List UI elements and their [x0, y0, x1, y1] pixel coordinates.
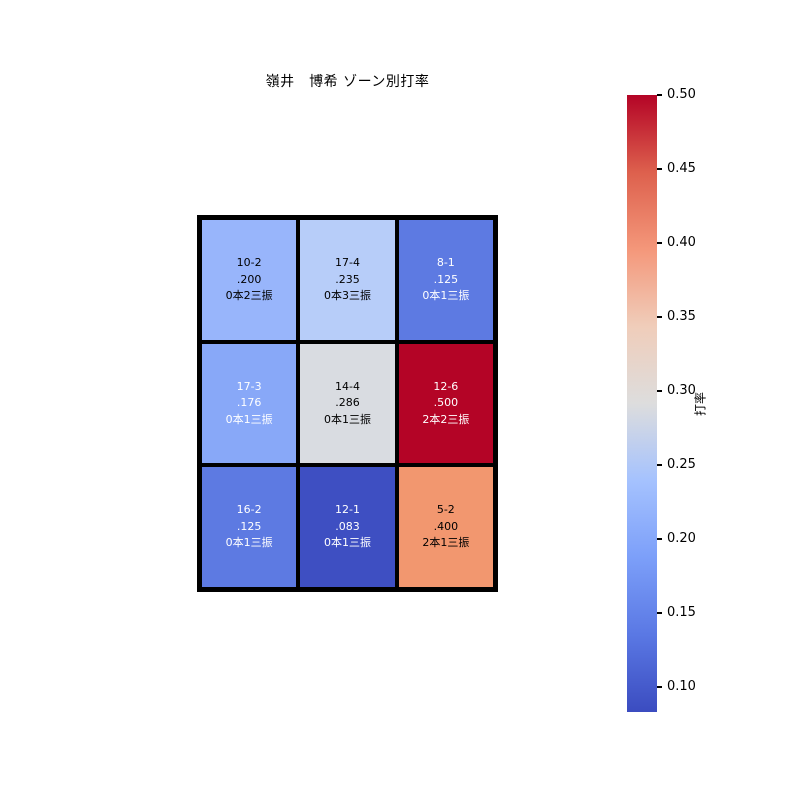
colorbar-axis-label: 打率: [692, 392, 709, 416]
tick-mark-icon: [657, 168, 662, 169]
tick-mark-icon: [657, 94, 662, 95]
cell-average: .200: [237, 272, 262, 289]
tick-mark-icon: [657, 390, 662, 391]
cell-pa-hits: 12-6: [433, 379, 458, 396]
tick-mark-icon: [657, 686, 662, 687]
cell-average: .176: [237, 395, 262, 412]
cell-average: .083: [335, 519, 360, 536]
heatmap-cell: 8-1 .125 0本1三振: [399, 220, 493, 340]
colorbar-gradient: [627, 95, 657, 712]
heatmap-cell: 10-2 .200 0本2三振: [202, 220, 296, 340]
figure: 嶺井 博希 ゾーン別打率 10-2 .200 0本2三振 17-4 .235 0…: [0, 0, 800, 800]
tick-label: 0.20: [667, 531, 696, 546]
cell-hr-so: 0本3三振: [324, 288, 371, 305]
tick-mark-icon: [657, 316, 662, 317]
cell-hr-so: 0本1三振: [226, 535, 273, 552]
cell-hr-so: 2本2三振: [422, 412, 469, 429]
tick-label: 0.10: [667, 679, 696, 694]
heatmap-cell: 16-2 .125 0本1三振: [202, 467, 296, 587]
tick-label: 0.35: [667, 309, 696, 324]
cell-pa-hits: 16-2: [237, 502, 262, 519]
cell-pa-hits: 17-3: [237, 379, 262, 396]
cell-hr-so: 0本1三振: [422, 288, 469, 305]
tick-mark-icon: [657, 538, 662, 539]
colorbar: 0.50 0.45 0.40 0.35 0.30 0.25 0.20 0.15 …: [627, 95, 747, 712]
cell-pa-hits: 14-4: [335, 379, 360, 396]
cell-average: .125: [237, 519, 262, 536]
cell-pa-hits: 5-2: [437, 502, 455, 519]
cell-average: .125: [434, 272, 459, 289]
tick-mark-icon: [657, 242, 662, 243]
chart-title: 嶺井 博希 ゾーン別打率: [97, 71, 598, 91]
cell-pa-hits: 10-2: [237, 255, 262, 272]
tick-mark-icon: [657, 464, 662, 465]
cell-hr-so: 0本1三振: [226, 412, 273, 429]
zone-heatmap: 10-2 .200 0本2三振 17-4 .235 0本3三振 8-1 .125…: [197, 215, 498, 592]
tick-label: 0.45: [667, 161, 696, 176]
cell-average: .400: [434, 519, 459, 536]
cell-hr-so: 0本1三振: [324, 412, 371, 429]
cell-average: .235: [335, 272, 360, 289]
cell-hr-so: 0本2三振: [226, 288, 273, 305]
cell-average: .286: [335, 395, 360, 412]
cell-pa-hits: 17-4: [335, 255, 360, 272]
heatmap-cell: 17-3 .176 0本1三振: [202, 344, 296, 464]
cell-average: .500: [434, 395, 459, 412]
heatmap-cell: 14-4 .286 0本1三振: [300, 344, 394, 464]
tick-label: 0.50: [667, 87, 696, 102]
cell-pa-hits: 8-1: [437, 255, 455, 272]
cell-hr-so: 0本1三振: [324, 535, 371, 552]
cell-hr-so: 2本1三振: [422, 535, 469, 552]
heatmap-cell: 17-4 .235 0本3三振: [300, 220, 394, 340]
heatmap-cell: 5-2 .400 2本1三振: [399, 467, 493, 587]
tick-label: 0.25: [667, 457, 696, 472]
cell-pa-hits: 12-1: [335, 502, 360, 519]
tick-label: 0.40: [667, 235, 696, 250]
tick-label: 0.15: [667, 605, 696, 620]
heatmap-cell: 12-1 .083 0本1三振: [300, 467, 394, 587]
heatmap-cell: 12-6 .500 2本2三振: [399, 344, 493, 464]
tick-mark-icon: [657, 612, 662, 613]
